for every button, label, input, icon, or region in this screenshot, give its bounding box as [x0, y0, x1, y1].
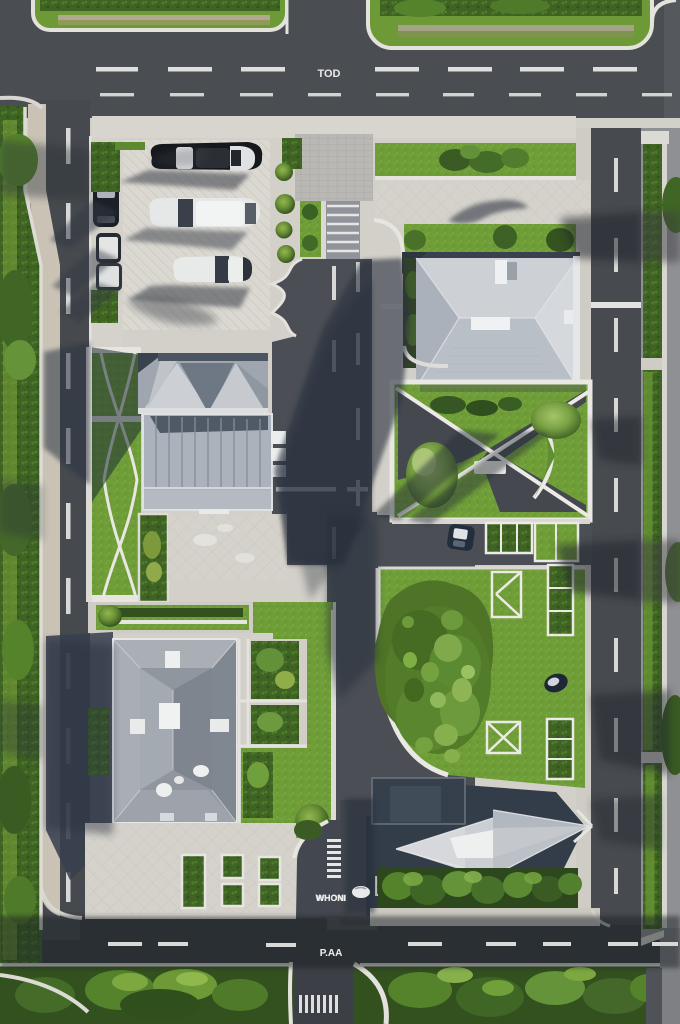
svg-text:P.AA: P.AA: [320, 948, 343, 959]
svg-text:WHONI: WHONI: [316, 893, 345, 903]
svg-text:TOD: TOD: [317, 68, 340, 80]
